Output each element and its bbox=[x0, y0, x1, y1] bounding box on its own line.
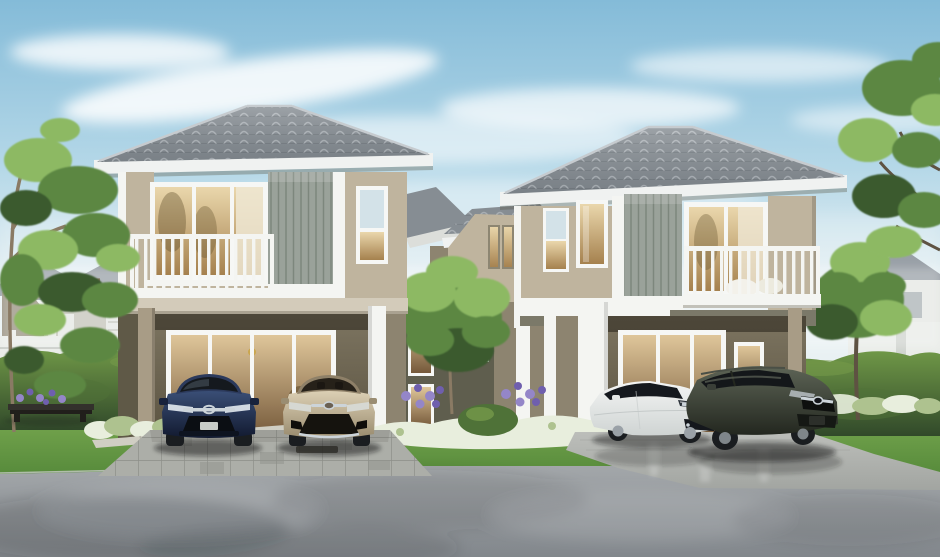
cloud bbox=[10, 34, 230, 70]
paver-dark-cell bbox=[368, 460, 390, 470]
railing-end-post bbox=[816, 251, 820, 294]
chrome-grille-bar bbox=[183, 408, 235, 412]
architectural-rendering: Two modern two-storey detached houses wi… bbox=[0, 0, 940, 557]
alloy-wheel bbox=[684, 427, 696, 439]
siding-grooves bbox=[268, 172, 333, 298]
l-trim-horizontal bbox=[268, 284, 345, 298]
foliage bbox=[96, 244, 140, 272]
flower-dot bbox=[436, 386, 444, 394]
railing-end-post bbox=[684, 251, 688, 294]
floor-band-shadow bbox=[118, 311, 408, 314]
cloud bbox=[630, 50, 890, 82]
bench-leg bbox=[80, 414, 86, 422]
bench-leg bbox=[14, 414, 20, 422]
railing-top-rail bbox=[130, 234, 274, 239]
balcony bbox=[129, 234, 275, 304]
carport-ceiling-shadow bbox=[155, 314, 368, 330]
foliage bbox=[816, 272, 860, 300]
slot-window bbox=[489, 226, 499, 268]
siding-highlight bbox=[624, 194, 682, 204]
foliage bbox=[0, 190, 52, 226]
side-mirror bbox=[250, 398, 259, 405]
stair-window-glass-bottom bbox=[360, 232, 384, 260]
foliage bbox=[866, 226, 922, 258]
foliage bbox=[406, 324, 454, 356]
border-speckle bbox=[548, 422, 556, 430]
flower-dot bbox=[49, 390, 56, 397]
cloud bbox=[440, 88, 740, 128]
bench-front bbox=[10, 410, 92, 414]
house-left bbox=[94, 106, 433, 454]
railing-balusters bbox=[686, 251, 818, 294]
paver-dark-cell bbox=[260, 452, 284, 464]
side-mirror bbox=[369, 398, 377, 404]
flower-dot bbox=[432, 400, 440, 408]
alloy-wheel bbox=[719, 432, 731, 444]
wing-window-glass-top bbox=[546, 211, 566, 239]
fog-light bbox=[686, 423, 690, 427]
bumper-lip bbox=[179, 431, 239, 436]
carport-ceiling-shadow bbox=[608, 316, 806, 332]
license-plate bbox=[809, 416, 825, 425]
lower-grille bbox=[299, 414, 359, 434]
flower-dot bbox=[27, 389, 34, 396]
flower-dot bbox=[538, 386, 546, 394]
flower-dot bbox=[58, 395, 66, 403]
bench-seat bbox=[8, 404, 94, 410]
siding-grooves bbox=[624, 194, 682, 310]
side-mirror bbox=[612, 395, 620, 400]
paver-dark-cell bbox=[200, 462, 224, 474]
foliage bbox=[60, 327, 120, 363]
flower-dot bbox=[516, 398, 525, 407]
foliage bbox=[862, 272, 906, 300]
flower-dot bbox=[525, 389, 535, 399]
l-trim-vertical bbox=[612, 196, 624, 310]
balcony-ledge-shadow bbox=[683, 305, 821, 308]
slot-window bbox=[503, 226, 513, 268]
foliage bbox=[82, 282, 138, 318]
flower-dot bbox=[514, 382, 522, 390]
driveway-left-pavers bbox=[98, 430, 432, 476]
foliage bbox=[860, 300, 912, 336]
balcony bbox=[683, 246, 821, 308]
brand-emblem bbox=[324, 402, 334, 409]
foliage bbox=[4, 346, 44, 374]
flower-dot bbox=[416, 400, 425, 409]
foliage bbox=[0, 254, 44, 306]
flower-dot bbox=[425, 391, 435, 401]
border-speckle bbox=[396, 428, 404, 436]
flower-dot bbox=[414, 384, 422, 392]
headrest bbox=[335, 382, 343, 389]
flower-dot bbox=[501, 389, 511, 399]
railing-top-rail bbox=[684, 246, 820, 251]
wing-window-glass-bottom bbox=[546, 241, 566, 269]
railing-balusters bbox=[132, 239, 272, 288]
foliage bbox=[40, 118, 80, 142]
stair-window-glass-top bbox=[360, 190, 384, 228]
side-mirror bbox=[159, 398, 168, 405]
glass-reflection bbox=[583, 206, 589, 262]
stair-window-transom bbox=[360, 228, 384, 232]
railing-end-post bbox=[270, 239, 274, 288]
l-trim-vertical bbox=[333, 172, 345, 298]
car-shadow bbox=[688, 442, 836, 462]
hedge-ball-highlight bbox=[466, 407, 494, 421]
flower-dot bbox=[16, 394, 24, 402]
foliage bbox=[838, 118, 898, 162]
foliage bbox=[426, 256, 478, 288]
foliage bbox=[462, 316, 510, 348]
side-mirror bbox=[707, 384, 716, 390]
side-mirror bbox=[281, 398, 289, 404]
flower-dot bbox=[36, 394, 44, 402]
brand-emblem bbox=[814, 397, 823, 404]
foliage bbox=[14, 304, 66, 336]
headrest bbox=[317, 382, 325, 389]
alloy-wheel bbox=[798, 429, 809, 440]
flower-dot bbox=[532, 398, 540, 406]
license-plate bbox=[200, 422, 218, 430]
flower-dot bbox=[401, 391, 411, 401]
siding-highlight bbox=[268, 172, 333, 182]
alloy-wheel bbox=[613, 426, 624, 437]
flower-dot bbox=[43, 399, 49, 405]
